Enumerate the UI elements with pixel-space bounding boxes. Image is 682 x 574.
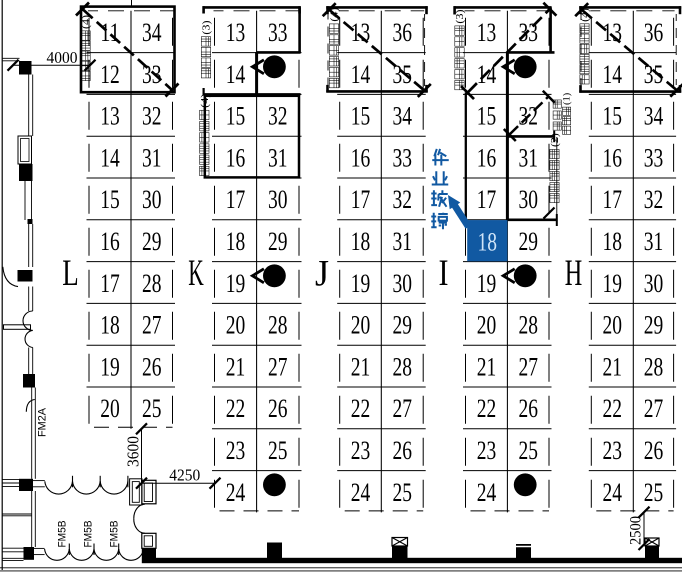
svg-text:25: 25 (268, 436, 288, 465)
svg-text:17: 17 (351, 185, 371, 214)
svg-text:17: 17 (226, 185, 246, 214)
svg-text:15: 15 (603, 102, 623, 131)
svg-text:24: 24 (603, 478, 623, 507)
svg-text:21: 21 (226, 352, 246, 381)
svg-text:18: 18 (226, 227, 246, 256)
svg-text:27: 27 (518, 352, 538, 381)
svg-text:14: 14 (351, 60, 371, 89)
svg-text:20: 20 (351, 311, 371, 340)
svg-text:16: 16 (603, 143, 623, 172)
svg-text:22: 22 (351, 394, 371, 423)
svg-text:27: 27 (142, 311, 162, 340)
svg-text:15: 15 (477, 102, 497, 131)
svg-text:23: 23 (477, 436, 497, 465)
svg-text:18: 18 (100, 311, 120, 340)
svg-text:29: 29 (142, 227, 162, 256)
svg-text:31: 31 (142, 143, 162, 172)
svg-text:32: 32 (644, 185, 664, 214)
svg-text:34: 34 (393, 102, 413, 131)
svg-text:35: 35 (393, 60, 413, 89)
svg-text:21: 21 (477, 352, 497, 381)
svg-text:28: 28 (518, 311, 538, 340)
svg-text:24: 24 (477, 478, 497, 507)
svg-text:26: 26 (142, 352, 162, 381)
svg-text:13: 13 (477, 18, 497, 47)
svg-text:17: 17 (603, 185, 623, 214)
svg-text:36: 36 (393, 18, 413, 47)
svg-text:32: 32 (268, 102, 288, 131)
svg-text:4250: 4250 (169, 465, 200, 484)
svg-text:FM5B: FM5B (82, 521, 94, 548)
svg-text:18: 18 (603, 227, 623, 256)
svg-text:21: 21 (351, 352, 371, 381)
svg-text:25: 25 (142, 394, 162, 423)
svg-text:25: 25 (393, 478, 413, 507)
svg-text:(2): (2) (550, 133, 561, 147)
svg-text:27: 27 (644, 394, 664, 423)
svg-text:20: 20 (477, 311, 497, 340)
svg-text:4000: 4000 (47, 48, 78, 67)
svg-text:18: 18 (478, 228, 498, 257)
svg-text:28: 28 (142, 269, 162, 298)
svg-text:H: H (565, 253, 583, 294)
svg-text:32: 32 (393, 185, 413, 214)
svg-text:19: 19 (226, 269, 246, 298)
svg-text:27: 27 (268, 352, 288, 381)
svg-text:14: 14 (603, 60, 623, 89)
svg-text:26: 26 (268, 394, 288, 423)
svg-text:22: 22 (477, 394, 497, 423)
svg-text:(4): (4) (80, 14, 92, 29)
svg-text:33: 33 (644, 143, 664, 172)
svg-text:16: 16 (226, 143, 246, 172)
svg-text:19: 19 (477, 269, 497, 298)
svg-text:14: 14 (226, 60, 246, 89)
svg-text:31: 31 (268, 143, 288, 172)
svg-text:21: 21 (603, 352, 623, 381)
svg-text:22: 22 (226, 394, 246, 423)
svg-text:30: 30 (644, 269, 664, 298)
svg-text:FM5B: FM5B (108, 521, 120, 548)
svg-text:31: 31 (644, 227, 664, 256)
svg-text:27: 27 (393, 394, 413, 423)
svg-text:24: 24 (226, 478, 246, 507)
svg-text:FM2A: FM2A (36, 407, 48, 437)
svg-text:(3): (3) (201, 20, 213, 35)
svg-text:29: 29 (644, 311, 664, 340)
svg-text:20: 20 (226, 311, 246, 340)
svg-text:34: 34 (644, 102, 664, 131)
svg-text:17: 17 (477, 185, 497, 214)
svg-text:K: K (188, 253, 204, 294)
svg-text:29: 29 (393, 311, 413, 340)
svg-text:25: 25 (644, 478, 664, 507)
svg-text:11: 11 (100, 18, 120, 47)
svg-text:28: 28 (393, 352, 413, 381)
svg-text:J: J (315, 254, 329, 295)
svg-text:(4): (4) (329, 7, 341, 22)
svg-text:34: 34 (142, 18, 162, 47)
svg-text:(3): (3) (454, 9, 466, 24)
svg-text:3600: 3600 (124, 436, 143, 467)
svg-text:22: 22 (603, 394, 623, 423)
svg-text:18: 18 (351, 227, 371, 256)
svg-text:31: 31 (518, 143, 538, 172)
svg-text:16: 16 (351, 143, 371, 172)
svg-text:31: 31 (393, 227, 413, 256)
svg-text:12: 12 (100, 60, 120, 89)
svg-text:13: 13 (100, 102, 120, 131)
svg-text:15: 15 (100, 185, 120, 214)
svg-text:23: 23 (351, 436, 371, 465)
svg-text:28: 28 (268, 311, 288, 340)
svg-text:2500: 2500 (628, 516, 645, 545)
svg-text:26: 26 (644, 436, 664, 465)
svg-text:30: 30 (268, 185, 288, 214)
svg-text:16: 16 (477, 143, 497, 172)
svg-text:36: 36 (644, 18, 664, 47)
svg-text:23: 23 (226, 436, 246, 465)
svg-text:30: 30 (393, 269, 413, 298)
svg-text:13: 13 (226, 18, 246, 47)
svg-text:20: 20 (100, 394, 120, 423)
svg-text:29: 29 (268, 227, 288, 256)
svg-text:24: 24 (351, 478, 371, 507)
svg-text:15: 15 (351, 102, 371, 131)
svg-text:(4): (4) (580, 7, 591, 21)
svg-text:25: 25 (518, 436, 538, 465)
svg-text:23: 23 (603, 436, 623, 465)
svg-text:26: 26 (518, 394, 538, 423)
svg-text:30: 30 (142, 185, 162, 214)
svg-text:(1): (1) (562, 93, 573, 105)
svg-text:16: 16 (100, 227, 120, 256)
svg-text:15: 15 (226, 102, 246, 131)
svg-text:19: 19 (100, 352, 120, 381)
svg-text:26: 26 (393, 436, 413, 465)
svg-text:29: 29 (518, 227, 538, 256)
svg-text:30: 30 (518, 185, 538, 214)
svg-text:I: I (439, 253, 449, 294)
svg-text:19: 19 (603, 269, 623, 298)
svg-text:19: 19 (351, 269, 371, 298)
svg-text:14: 14 (100, 143, 120, 172)
svg-text:FM5B: FM5B (56, 521, 68, 548)
svg-text:(4): (4) (199, 93, 211, 108)
svg-text:20: 20 (603, 311, 623, 340)
svg-text:L: L (62, 253, 79, 294)
svg-text:32: 32 (142, 102, 162, 131)
svg-text:17: 17 (100, 269, 120, 298)
svg-text:28: 28 (644, 352, 664, 381)
svg-text:33: 33 (393, 143, 413, 172)
svg-text:33: 33 (268, 18, 288, 47)
